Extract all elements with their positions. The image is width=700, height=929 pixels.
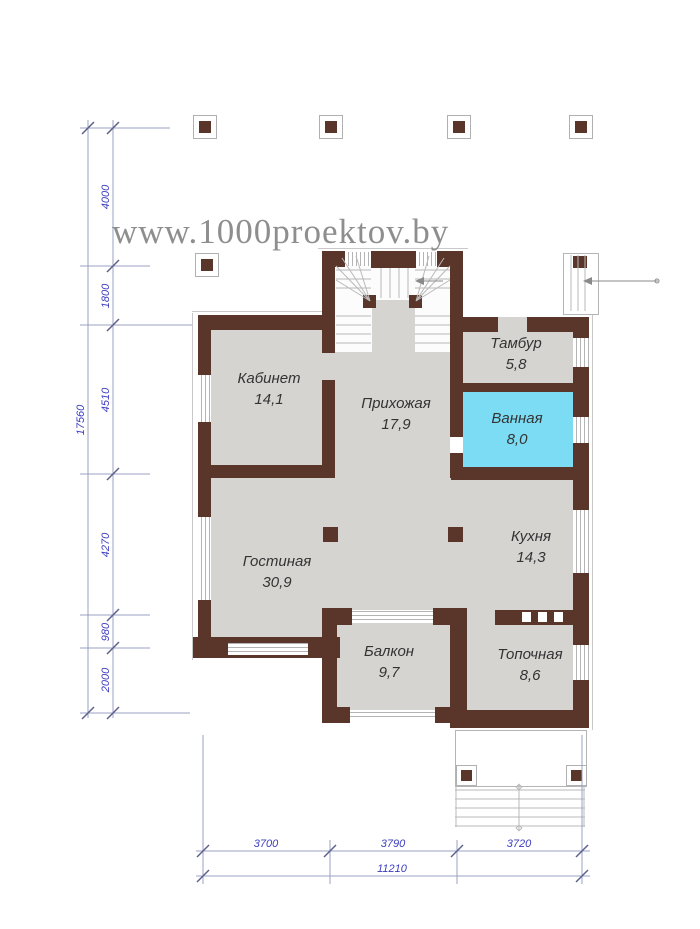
dimension-lines-left [80,120,192,718]
dim-left-4270: 4270 [100,532,112,557]
room-area: 14,1 [254,391,283,408]
room-name: Прихожая [361,395,431,412]
room-label-bathroom: Ванная 8,0 [491,408,542,450]
dimension-lines-bottom [196,735,590,884]
room-label-study: Кабинет 14,1 [238,368,301,410]
room-label-vestibule: Тамбур 5,8 [490,333,541,375]
dim-left-1800: 1800 [100,283,112,308]
entry-steps-icon [571,255,585,311]
room-label-hallway: Прихожая 17,9 [361,393,431,435]
room-area: 8,6 [520,667,541,684]
dim-left-2000: 2000 [100,667,112,693]
dim-left-980: 980 [100,622,112,641]
entrance-arrow-icon [583,277,659,285]
dim-bottom-total: 11210 [377,863,408,875]
room-name: Гостиная [243,553,312,570]
stair-treads-icon [336,256,450,343]
room-name: Балкон [364,643,414,660]
room-label-livingroom: Гостиная 30,9 [243,551,312,593]
dim-left-4000: 4000 [100,184,112,209]
room-area: 9,7 [379,664,400,681]
dim-left-total: 17560 [75,404,87,435]
room-area: 8,0 [507,431,528,448]
room-area: 30,9 [262,574,291,591]
dim-left-4510: 4510 [100,387,112,412]
room-name: Топочная [497,646,562,663]
room-name: Тамбур [490,335,541,352]
room-area: 17,9 [381,416,410,433]
room-label-balcony: Балкон 9,7 [364,641,414,683]
watermark-text: www.1000proektov.by [112,212,449,252]
dim-bottom-3720: 3720 [507,838,532,850]
room-area: 5,8 [506,356,527,373]
room-name: Кабинет [238,370,301,387]
porch-steps-icon [455,784,585,831]
dim-bottom-3790: 3790 [381,838,406,850]
room-label-kitchen: Кухня 14,3 [511,526,551,568]
linework-layer: 4000 1800 4510 4270 980 2000 17560 3700 … [0,0,700,929]
room-name: Кухня [511,528,551,545]
dim-bottom-3700: 3700 [254,838,279,850]
room-area: 14,3 [516,549,545,566]
room-label-boiler: Топочная 8,6 [497,644,562,686]
room-name: Ванная [491,410,542,427]
floor-plan-canvas: 4000 1800 4510 4270 980 2000 17560 3700 … [0,0,700,929]
